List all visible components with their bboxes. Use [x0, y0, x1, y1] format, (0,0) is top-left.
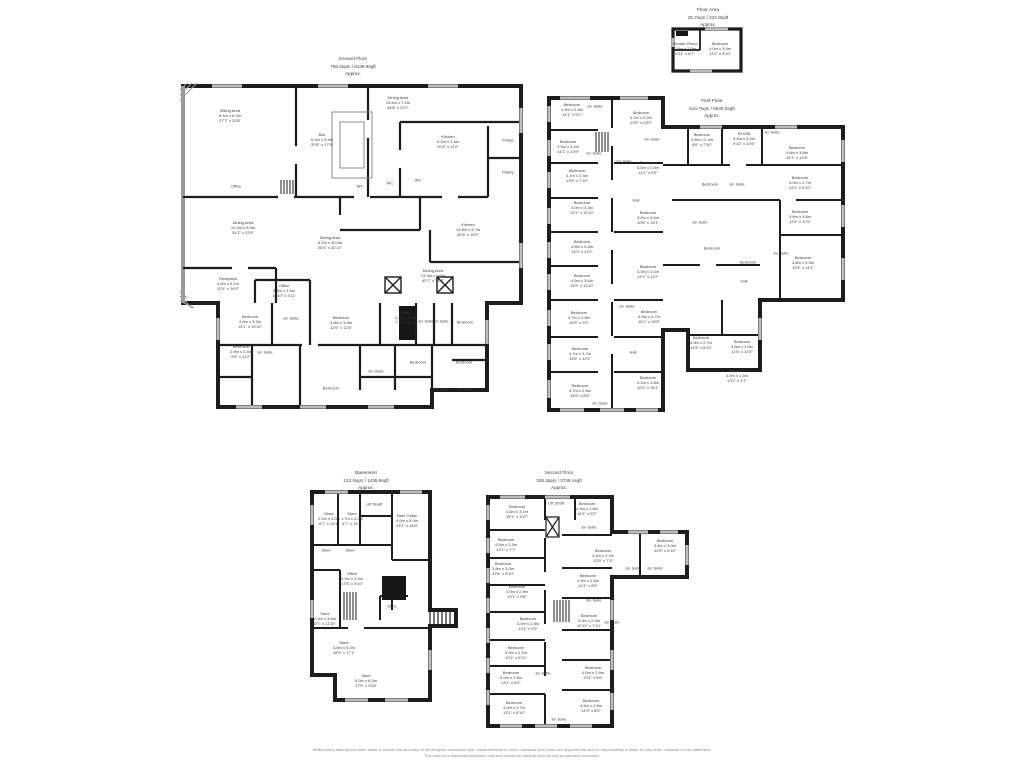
first-floor-room-label: Bedroom4.1m x 2.4m13'5" x 7'10" [566, 168, 588, 184]
ground-floor-room-label: En Suite [368, 368, 383, 373]
first-floor-room-label: En Suite [644, 136, 659, 141]
ground-floor-room-label: En Suite [418, 318, 433, 323]
first-floor-room-label: ROOM3.0m x 3.2m9'10" x 10'6" [733, 131, 755, 147]
ground-floor-room-label: Dining Area6.2m x 10.0m20'4" x 32'10" [318, 235, 342, 251]
first-floor-room-label: En Suite [592, 400, 607, 405]
basement-room-label: Store [387, 603, 397, 608]
first-floor-room-label: Bedroom4.3m x 3.4m14'1" x 11'2" [637, 264, 659, 280]
ground-floor-room-label: En Suite [257, 349, 272, 354]
second-floor-room-label: Bedroom4.3m x 2.8m14'1" x 9'2" [576, 501, 598, 517]
ground-floor-room-label: Office3.3m x 1.5m10'10" x 4'11" [272, 283, 296, 299]
second-floor-room-label: En Suite [625, 565, 640, 570]
ground-floor-room-label: Pantry [502, 169, 514, 174]
first-floor-room-label: Bedroom3.4m x 2.8m11'2" x 9'2" [637, 160, 659, 176]
basement-room-label: Store [321, 547, 331, 552]
first-floor-room-label: Bedroom4.6m x 3.8m15'1" x 12'6" [786, 145, 808, 161]
first-floor-room-label: Bedroom4.0m x 2.7m13'1" x 8'10" [789, 175, 811, 191]
ground-floor-room-label: Sitting Area8.4m x 6.3m27'7" x 20'8" [219, 108, 241, 124]
ground-floor-room-label: Kitchen13.8m x 4.7m45'3" x 15'5" [456, 222, 480, 238]
first-floor-room-label: Bedroom4.7m x 3.7m15'5" x 12'2" [569, 346, 591, 362]
ground-floor-room-label: En Suite [458, 386, 473, 391]
first-floor-room-label: Bedroom3.2m x 4.0m10'6" x 13'1" [637, 210, 659, 226]
first-floor-room-label: En Suite [616, 158, 631, 163]
first-floor-room-label: Bathroom4.0m x 1.4m13'1" x 4'7" [726, 368, 748, 384]
second-floor-room-label: En Suite [604, 619, 619, 624]
first-floor-room-label: Bedroom4.7m x 2.6m15'5" x 8'6" [569, 383, 591, 399]
labels-layer: Ground Floor756.2sqm / 8139.8sqftApprox.… [0, 0, 1024, 768]
ground-floor-room-label: WC [387, 180, 394, 185]
basement-room-label: Store1.7m x 4.0m5'7" x 13'1" [341, 511, 363, 527]
first-floor-room-label: Bedroom [740, 259, 756, 264]
first-floor-room-label: Bedroom3.8m x 4.3m12'6" x 14'1" [792, 255, 814, 271]
second-floor-room-label: Bedroom4.0m x 2.7m13'1" x 8'10" [503, 700, 525, 716]
first-floor-room-label: En Suite [619, 303, 634, 308]
second-floor-room-label: Bedroom3.3m x 2.4m10'10" x 7'10" [577, 613, 601, 629]
basement-room-label: Lift Shaft [366, 501, 382, 506]
first-floor-room-label: Hall [741, 278, 748, 283]
ground-floor-room-label: Bedroom [457, 319, 473, 324]
ground-floor-room-label: Kitchen6.2m x 3.4m20'4" x 11'2" [437, 134, 459, 150]
ground-floor-room-label: En Suite [433, 318, 448, 323]
ground-floor-room-label: En Suite [283, 315, 298, 320]
ground-floor-title: Ground Floor756.2sqm / 8139.8sqftApprox. [330, 57, 375, 77]
basement-room-label: Store2.0m x 4.0m6'7" x 13'1" [318, 511, 340, 527]
floor-area-room-label: Bedroom4.0m x 3.0m13'1" x 9'10" [709, 41, 731, 57]
basement-room-label: Store [345, 547, 355, 552]
floor-area-room-label: Shower Room1.8m x 2.0m5'11" x 6'7" [672, 41, 697, 57]
floor-area-title: Floor Area20.7sqm / 222.8sqftApprox. [688, 8, 728, 28]
first-floor-room-label: Bedroom3.5m x 3.5m11'6" x 11'6" [731, 339, 753, 355]
first-floor-title: First Floor514.7sqm / 5540.2sqftApprox. [689, 99, 734, 119]
first-floor-room-label: Bedroom [702, 181, 718, 186]
ground-floor-room-label: Office [231, 183, 241, 188]
ground-floor-room-label: Bedroom [323, 385, 339, 390]
second-floor-room-label: Bedroom4.6m x 3.1m15'1" x 10'2" [506, 504, 528, 520]
ground-floor-room-label: WC [357, 183, 364, 188]
ground-floor-room-label: Office2.4m x 2.1m7'10" x 6'11" [395, 310, 417, 326]
basement-room-label: Office5.3m x 3.0m17'5" x 9'10" [341, 571, 363, 587]
ground-floor-room-label: Bedroom3.8m x 3.8m12'6" x 12'6" [330, 315, 352, 331]
first-floor-room-label: En Suite [692, 219, 707, 224]
ground-floor-room-label: Dining Area13.3m x 9.6m43'7" x 31'6" [421, 268, 445, 284]
first-floor-room-label: Bedroom [704, 245, 720, 250]
ground-floor-room-label: Bedroom [456, 359, 472, 364]
disclaimer-line-2: This plan is for illustrative purposes o… [313, 753, 712, 759]
first-floor-room-label: Bedroom4.2m x 4.2m13'9" x 13'9" [630, 110, 652, 126]
first-floor-room-label: Bedroom4.3m x 2.8m14'1" x 9'2" [561, 102, 583, 118]
second-floor-room-label: Bedroom4.0m x 2.5m13'1" x 8'2" [500, 670, 522, 686]
second-floor-room-label: Bedroom3.8m x 3.0m12'6" x 9'10" [492, 561, 514, 577]
second-floor-room-label: En Suite [581, 524, 596, 529]
first-floor-room-label: Bedroom4.3m x 4.2m14'1" x 13'9" [557, 139, 579, 155]
first-floor-room-label: En Suite [729, 181, 744, 186]
first-floor-room-label: Bedroom4.5m x 3.6m14'9" x 11'10" [570, 273, 594, 289]
first-floor-room-label: Bedroom4.5m x 3.4m14'9" x 11'2" [571, 239, 593, 255]
first-floor-room-label: Bedroom3.1m x 4.6m10'2" x 15'1" [637, 375, 659, 391]
second-floor-room-label: En Suite [535, 670, 550, 675]
second-floor-room-label: Bedroom4.0m x 2.8m13'1" x 9'2" [517, 616, 539, 632]
second-floor-room-label: En Suite [647, 565, 662, 570]
second-floor-room-label: Lift Shaft [548, 500, 564, 505]
ground-floor-room-label: WC [415, 177, 422, 182]
second-floor-room-label: En Suite [586, 597, 601, 602]
second-floor-title: Second Floor348.3sqm / 3749.1sqftApprox. [536, 471, 581, 491]
second-floor-room-label: Bedroom4.0m x 2.9m13'1" x 9'6" [506, 584, 528, 600]
first-floor-room-label: En Suite [773, 250, 788, 255]
first-floor-room-label: En Suite [587, 103, 602, 108]
basement-room-label: Store5.3m x 6.3m17'5" x 20'8" [355, 673, 377, 689]
first-floor-room-label: Hall [630, 349, 637, 354]
first-floor-room-label: Bedroom4.0m x 3.3m13'1" x 10'10" [570, 200, 594, 216]
second-floor-room-label: En Suite [551, 716, 566, 721]
first-floor-room-label: Bedroom4.7m x 2.8m15'5" x 9'2" [568, 310, 590, 326]
first-floor-room-label: Bedroom2.6m x 2.4m8'6" x 7'10" [691, 132, 713, 148]
ground-floor-room-label: Bedroom4.0m x 3.3m13'1" x 10'10" [238, 314, 262, 330]
ground-floor-room-label: Bedroom2.9m x 3.4m9'6" x 11'2" [230, 344, 252, 360]
first-floor-room-label: En Suite [764, 129, 779, 134]
floorplan-page: { "colors":{"wall":"#1c1c1c","window":"#… [0, 0, 1024, 768]
first-floor-room-label: Bedroom3.8m x 3.8m12'6" x 12'6" [789, 209, 811, 225]
ground-floor-room-label: Reception4.0m x 5.1m13'1" x 16'9" [217, 276, 239, 292]
ground-floor-room-label: En Suite [433, 386, 448, 391]
second-floor-room-label: Bedroom4.5m x 2.5m14'9" x 8'2" [580, 698, 602, 714]
first-floor-room-label: En Suite [586, 150, 601, 155]
second-floor-room-label: Bedroom4.0m x 2.3m13'1" x 7'7" [495, 537, 517, 553]
first-floor-room-label: Bedroom4.5m x 2.7m14'9" x 8'10" [690, 335, 712, 351]
second-floor-room-label: Bedroom3.8m x 3.0m12'6" x 9'10" [654, 538, 676, 554]
second-floor-room-label: Bedroom4.0m x 2.6m13'1" x 8'6" [582, 665, 604, 681]
second-floor-room-label: Bedroom4.2m x 2.2m13'9" x 7'3" [592, 548, 614, 564]
ground-floor-room-label: Dining Area13.6m x 7.2m44'8" x 23'7" [386, 95, 410, 111]
first-floor-room-label: Bedroom4.9m x 4.7m16'1" x 15'5" [638, 309, 660, 325]
basement-room-label: Store2.0m x 3.6m6'7" x 11'10" [314, 611, 336, 627]
first-floor-room-label: Hall [633, 197, 640, 202]
basement-title: Basement133.4sqm / 1435.9sqftApprox. [343, 471, 388, 491]
ground-floor-room-label: Bedroom [410, 359, 426, 364]
disclaimer: Whilst every attempt has been made to en… [313, 747, 712, 759]
basement-room-label: Store4.8m x 5.2m15'9" x 17'1" [333, 640, 355, 656]
ground-floor-room-label: Bar6.3m x 5.4m20'8" x 17'9" [311, 132, 333, 148]
second-floor-room-label: Bedroom4.0m x 2.1m13'1" x 6'11" [505, 645, 527, 661]
ground-floor-room-label: Dining Area10.4m x 6.9m34'1" x 22'8" [231, 220, 255, 236]
ground-floor-room-label: Fridge [502, 137, 513, 142]
basement-room-label: Beer Cellar4.0m x 5.0m13'1" x 16'5" [396, 513, 418, 529]
second-floor-room-label: Bedroom4.3m x 2.6m14'1" x 8'6" [577, 573, 599, 589]
